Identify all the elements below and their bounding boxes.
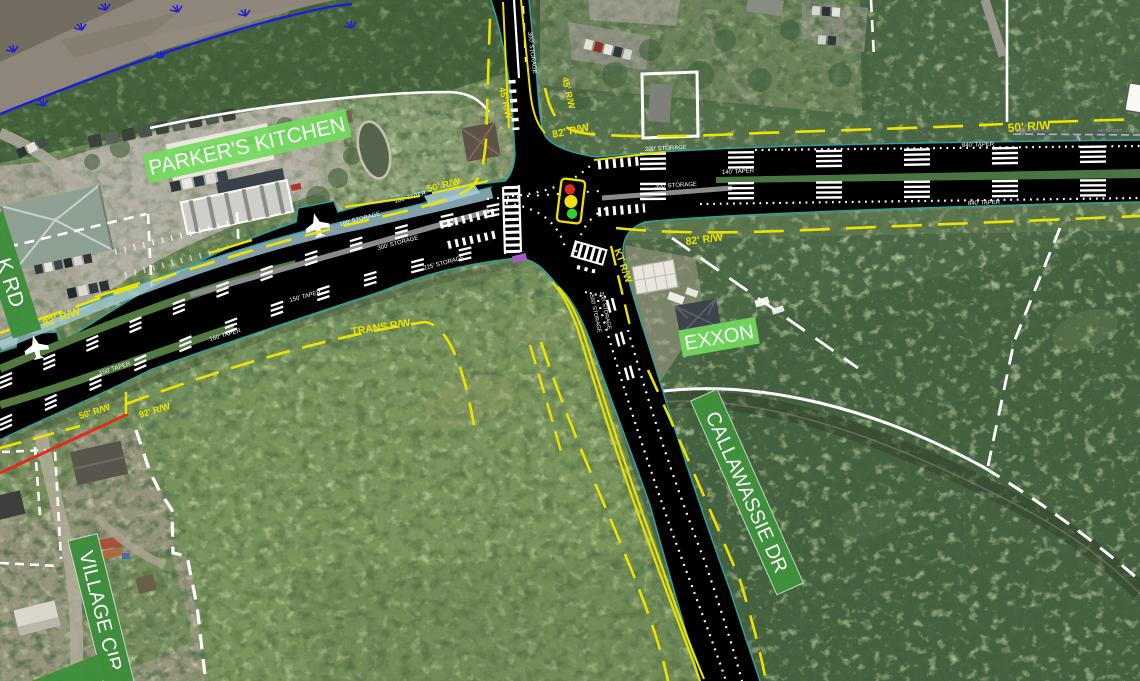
svg-text:840' TAPER: 840' TAPER bbox=[962, 142, 995, 149]
svg-text:840' TAPER: 840' TAPER bbox=[968, 200, 1001, 207]
svg-text:BEAUFORT CO: BEAUFORT CO bbox=[1016, 128, 1049, 133]
svg-text:BEAUFORT: BEAUFORT bbox=[1098, 128, 1123, 133]
